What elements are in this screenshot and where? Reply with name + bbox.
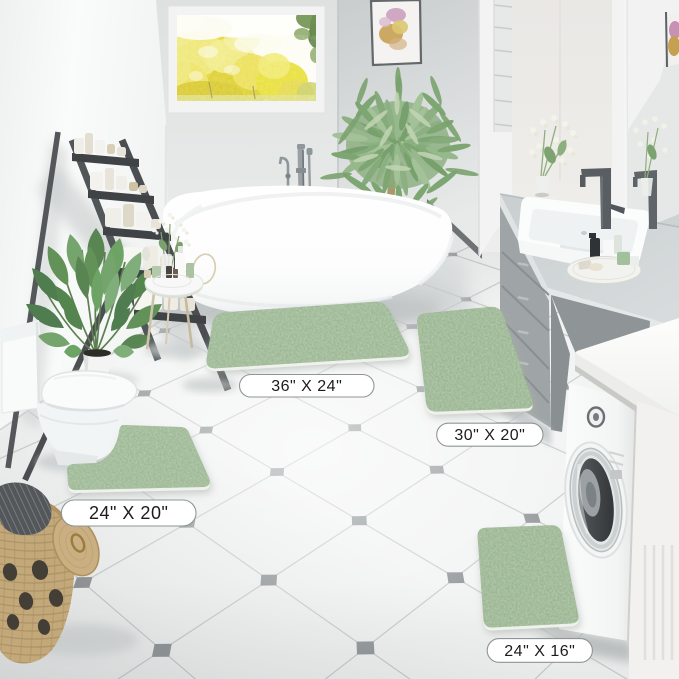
svg-text:24" X 20": 24" X 20" (89, 503, 168, 523)
svg-text:36" X 24": 36" X 24" (271, 378, 342, 395)
svg-text:30" X 20": 30" X 20" (454, 427, 525, 444)
svg-text:24" X 16": 24" X 16" (504, 643, 575, 660)
